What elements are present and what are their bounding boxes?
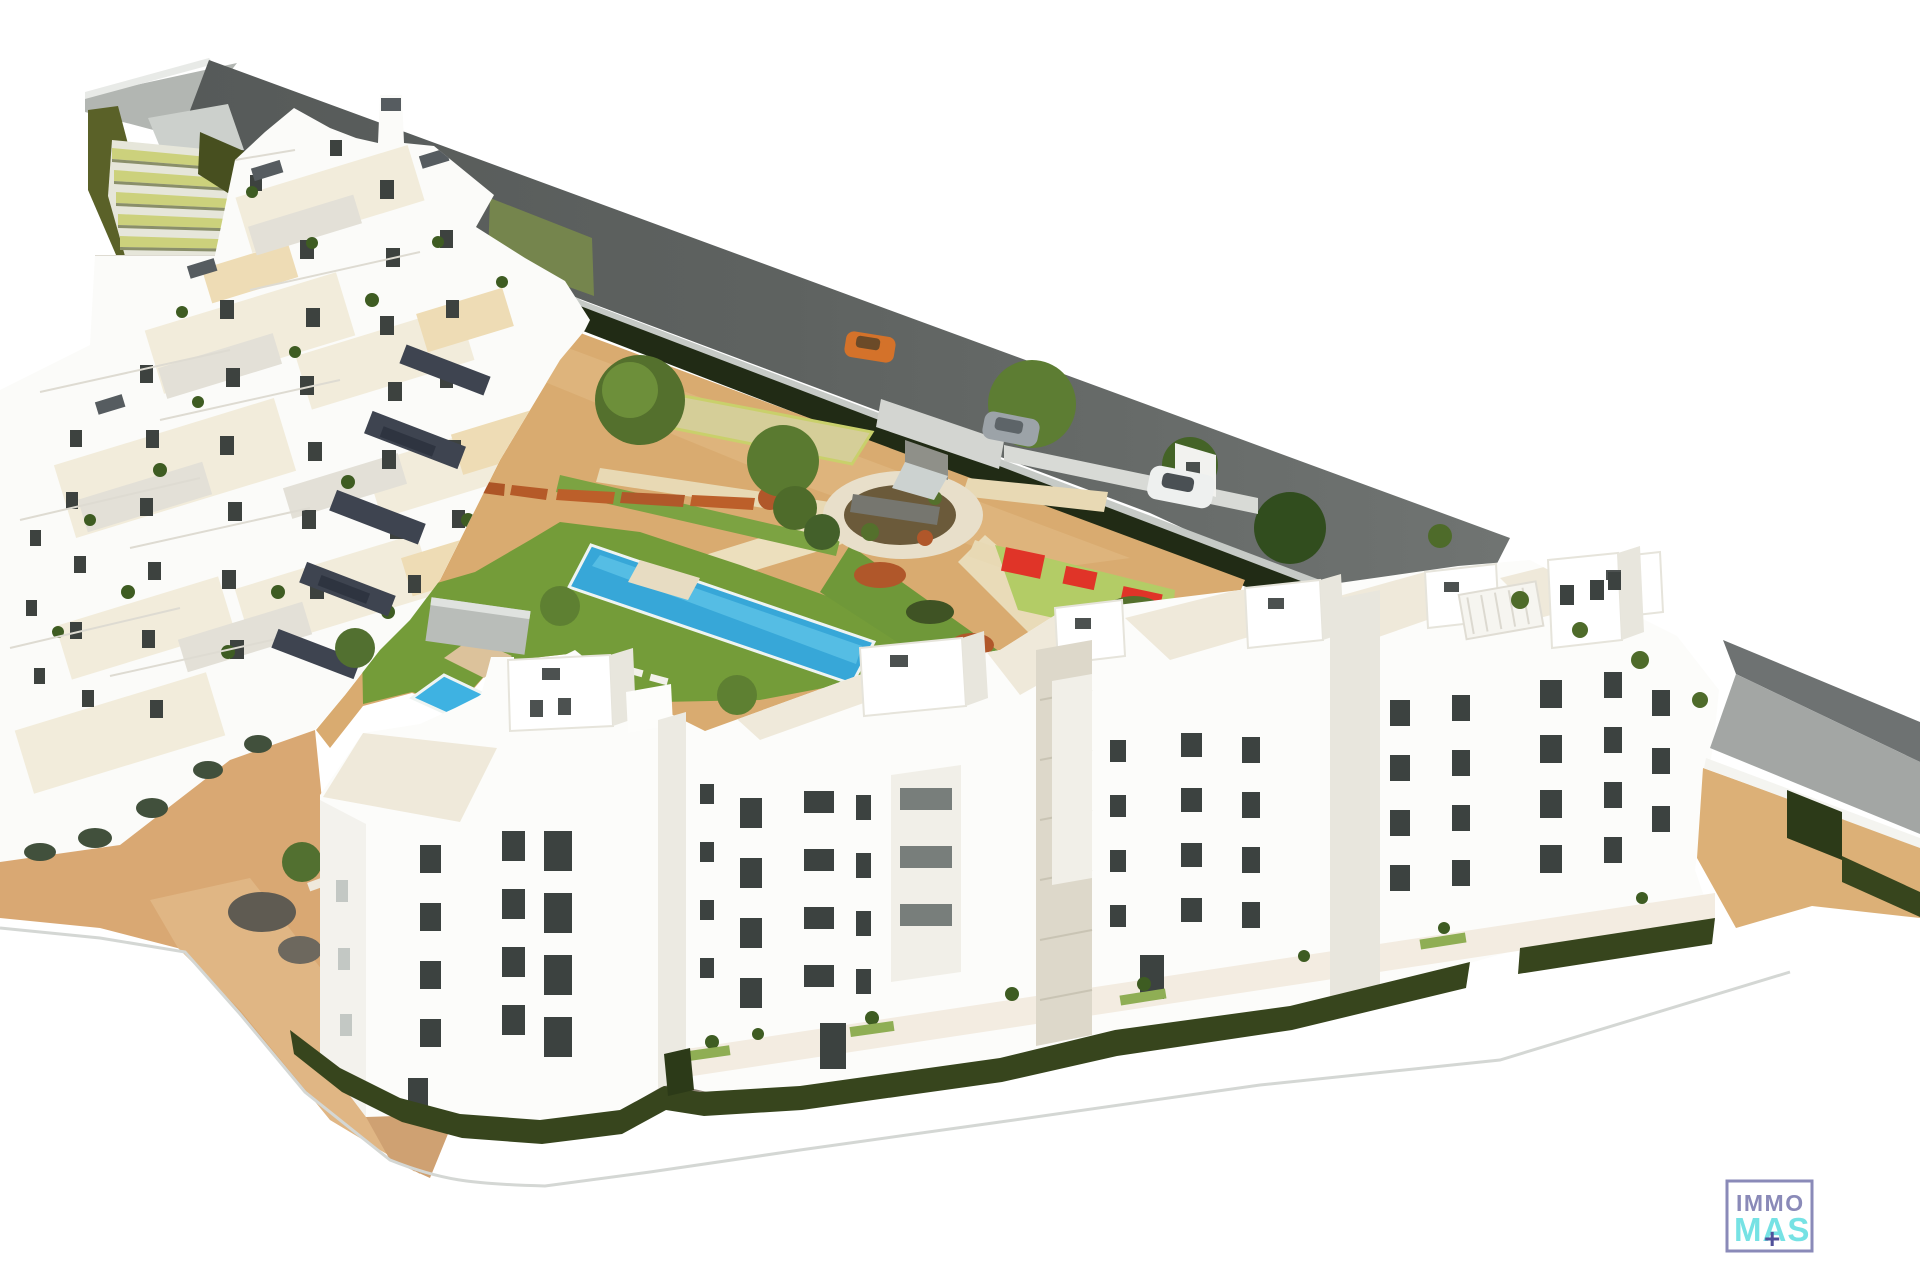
svg-text:+: + <box>1764 1223 1780 1254</box>
